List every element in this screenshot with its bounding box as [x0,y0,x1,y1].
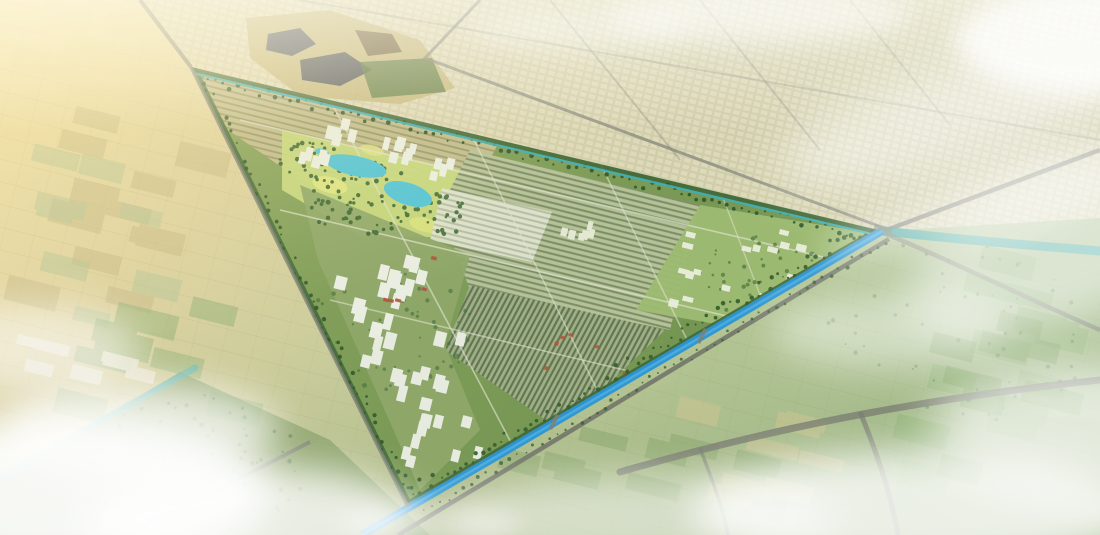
cloud [470,10,690,50]
cloud [0,380,280,480]
scene-canvas [0,0,1100,535]
aerial-masterplan-render [0,0,1100,535]
cloud [770,290,1010,370]
